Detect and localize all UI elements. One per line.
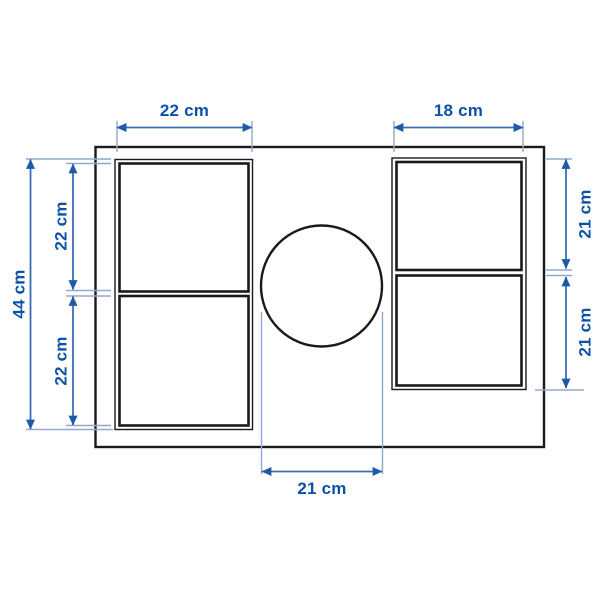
right-compartment-block bbox=[392, 158, 526, 390]
right-lower-compartment bbox=[397, 276, 522, 386]
diagram-canvas: 22 cm 18 cm 44 cm 22 cm 22 cm 21 cm bbox=[0, 0, 600, 600]
dim-overall-height: 44 cm bbox=[10, 159, 114, 430]
dim-label-top-right-width: 18 cm bbox=[434, 101, 483, 120]
right-block-frame bbox=[392, 158, 526, 390]
dim-label-top-left-width: 22 cm bbox=[160, 101, 209, 120]
dim-circle-diameter: 21 cm bbox=[262, 312, 383, 498]
center-circle bbox=[261, 226, 382, 347]
right-upper-compartment bbox=[397, 162, 522, 270]
left-block-frame bbox=[115, 160, 253, 430]
dim-left-upper-height: 22 cm bbox=[52, 164, 112, 291]
dimension-diagram: 22 cm 18 cm 44 cm 22 cm 22 cm 21 cm bbox=[0, 0, 600, 600]
dim-label-right-lower-height: 21 cm bbox=[576, 307, 595, 356]
left-upper-compartment bbox=[120, 164, 249, 292]
dim-left-lower-height: 22 cm bbox=[52, 296, 112, 426]
dim-label-circle-diameter: 21 cm bbox=[297, 479, 346, 498]
dim-top-right-width: 18 cm bbox=[394, 101, 523, 152]
left-lower-compartment bbox=[120, 296, 249, 426]
dim-label-right-upper-height: 21 cm bbox=[576, 189, 595, 238]
dim-label-overall-height: 44 cm bbox=[10, 269, 29, 318]
dim-top-left-width: 22 cm bbox=[117, 101, 252, 152]
dim-right-upper-height: 21 cm bbox=[546, 159, 595, 270]
left-compartment-block bbox=[115, 160, 253, 430]
dim-label-left-upper-height: 22 cm bbox=[52, 201, 71, 250]
dim-label-left-lower-height: 22 cm bbox=[52, 336, 71, 385]
